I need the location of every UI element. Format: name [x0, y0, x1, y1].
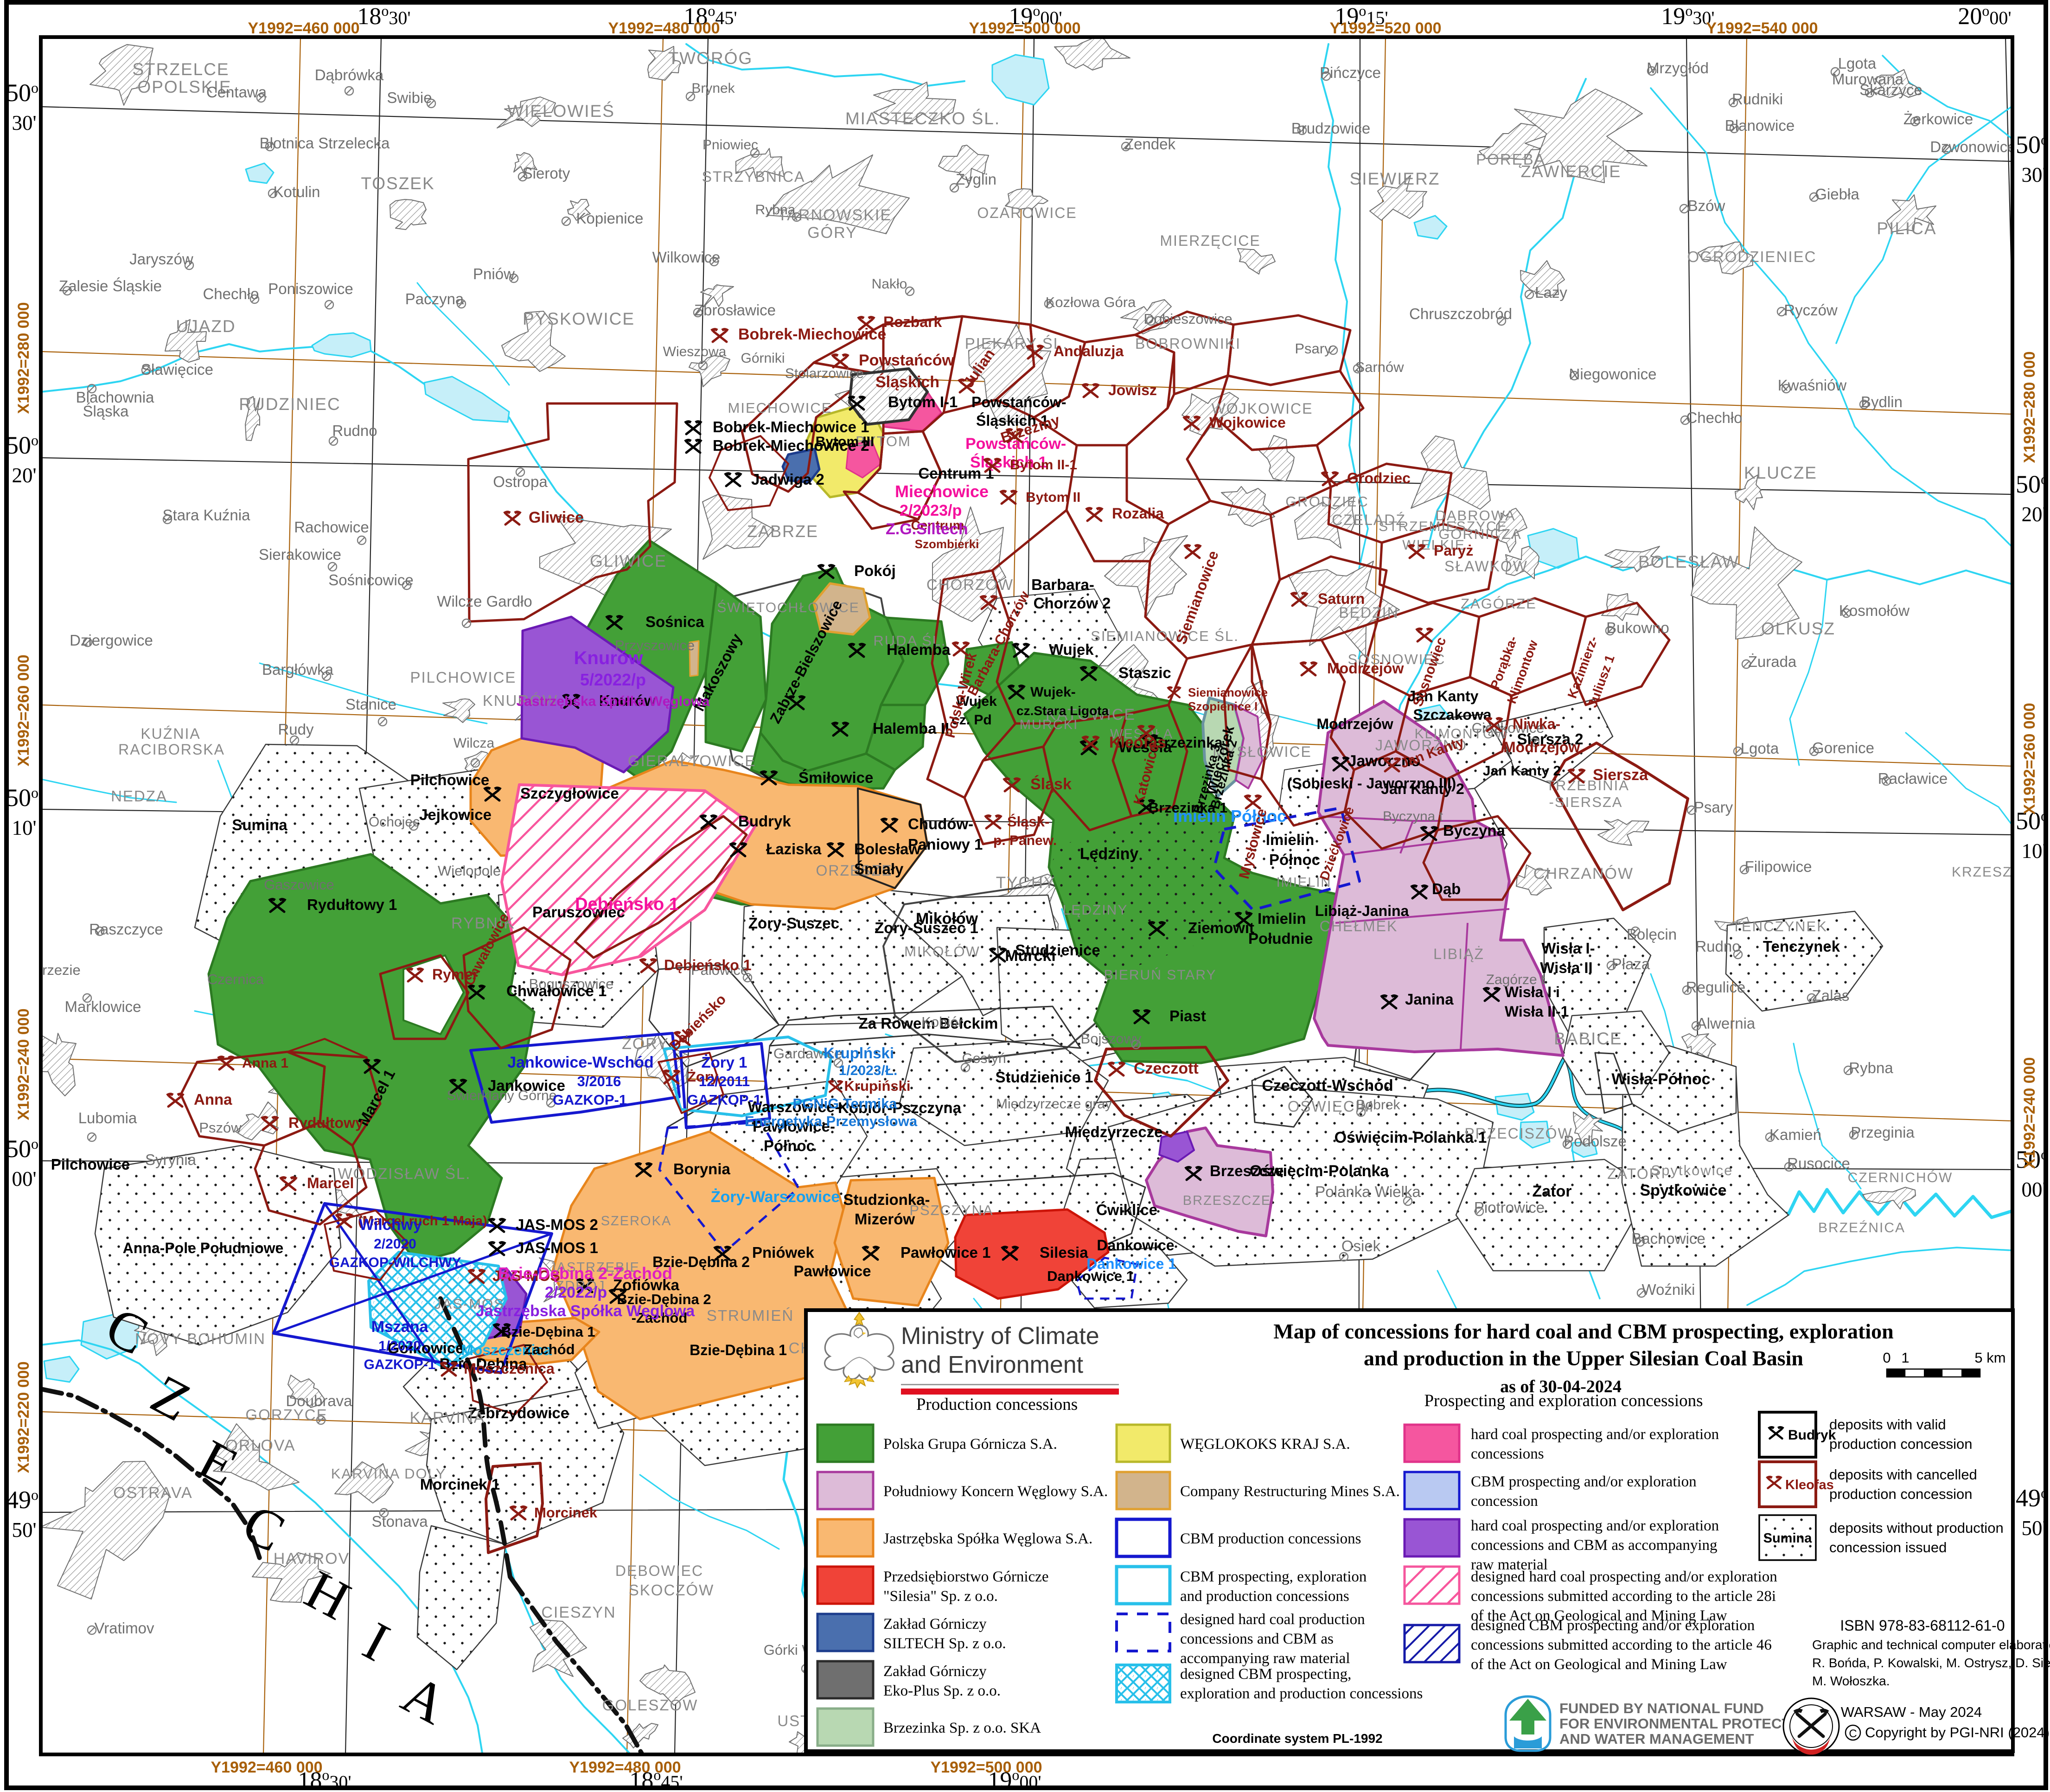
- svg-text:Stonava: Stonava: [371, 1513, 428, 1530]
- svg-text:Przedsiębiorstwo Górnicze: Przedsiębiorstwo Górnicze: [883, 1568, 1048, 1585]
- svg-text:Y1992=480 000: Y1992=480 000: [608, 19, 720, 37]
- svg-text:OLKUSZ: OLKUSZ: [1761, 619, 1835, 638]
- svg-text:CHRZANÓW: CHRZANÓW: [1533, 865, 1634, 883]
- svg-text:SIEWIERZ: SIEWIERZ: [1350, 169, 1440, 188]
- svg-text:concession: concession: [1471, 1493, 1538, 1510]
- svg-text:Płaza: Płaza: [1612, 955, 1650, 973]
- svg-text:Pniówek: Pniówek: [752, 1244, 815, 1261]
- svg-text:Modrzejów: Modrzejów: [1503, 739, 1580, 755]
- svg-text:SZEROKA: SZEROKA: [601, 1214, 672, 1229]
- svg-text:X1992=240 000: X1992=240 000: [15, 1008, 32, 1120]
- svg-text:WARSAW - May 2024: WARSAW - May 2024: [1841, 1704, 1982, 1720]
- svg-text:OGRODZIENIEC: OGRODZIENIEC: [1687, 248, 1817, 265]
- svg-text:Sumina: Sumina: [232, 816, 287, 833]
- svg-text:Energetyka Przemysłowa: Energetyka Przemysłowa: [745, 1113, 918, 1129]
- svg-text:Gorenice: Gorenice: [1812, 739, 1874, 756]
- svg-text:Śmiłowice: Śmiłowice: [798, 769, 873, 786]
- svg-text:Lgota: Lgota: [1741, 740, 1779, 757]
- svg-text:Czeczott-Wschód: Czeczott-Wschód: [1262, 1077, 1393, 1094]
- svg-text:Bydlin: Bydlin: [1861, 393, 1903, 410]
- svg-text:STRZYBNICA: STRZYBNICA: [702, 168, 805, 185]
- svg-text:1919: 1919: [1804, 1739, 1818, 1746]
- svg-text:Sieroty: Sieroty: [523, 165, 570, 182]
- svg-text:Wielopole: Wielopole: [438, 863, 501, 879]
- svg-text:Stanice: Stanice: [345, 696, 396, 713]
- svg-text:OSTRAVA: OSTRAVA: [113, 1484, 192, 1502]
- svg-text:Tenczynek: Tenczynek: [1763, 938, 1840, 955]
- svg-text:Brzeszcze: Brzeszcze: [1210, 1162, 1284, 1179]
- svg-text:LIBIĄŻ: LIBIĄŻ: [1433, 946, 1484, 962]
- svg-text:deposits with valid: deposits with valid: [1829, 1416, 1946, 1433]
- svg-text:Saturn: Saturn: [1318, 590, 1365, 607]
- svg-text:STRZEMIESZYCE: STRZEMIESZYCE: [1379, 519, 1507, 534]
- svg-text:WĘGLOKOKS KRAJ S.A.: WĘGLOKOKS KRAJ S.A.: [1180, 1436, 1350, 1453]
- svg-text:Spytkowice: Spytkowice: [1640, 1182, 1726, 1199]
- svg-text:SKOCZÓW: SKOCZÓW: [629, 1581, 715, 1599]
- svg-text:Dzwonowice: Dzwonowice: [1930, 138, 2016, 155]
- svg-text:Wojkowice: Wojkowice: [1209, 414, 1286, 431]
- svg-text:Rybna: Rybna: [755, 202, 796, 218]
- svg-text:BOLESŁAW: BOLESŁAW: [1638, 552, 1739, 571]
- svg-text:Coordinate system PL-1992: Coordinate system PL-1992: [1212, 1731, 1382, 1746]
- svg-text:Bytom II-1: Bytom II-1: [1010, 457, 1077, 473]
- svg-text:Libiąż-Janina: Libiąż-Janina: [1315, 902, 1409, 919]
- svg-text:Dąb: Dąb: [1432, 880, 1461, 897]
- svg-text:Jadwiga 2: Jadwiga 2: [751, 471, 824, 488]
- svg-text:Śmiały: Śmiały: [854, 860, 904, 877]
- svg-text:Halemba: Halemba: [887, 641, 951, 658]
- svg-text:Borynia: Borynia: [673, 1160, 731, 1178]
- svg-text:SILTECH Sp. z o.o.: SILTECH Sp. z o.o.: [883, 1635, 1006, 1652]
- svg-text:Halemba II: Halemba II: [873, 720, 949, 737]
- svg-text:Psary: Psary: [1295, 340, 1332, 357]
- svg-text:JAS-MOS 2: JAS-MOS 2: [516, 1216, 598, 1233]
- svg-text:Przeginia: Przeginia: [1851, 1124, 1915, 1141]
- svg-text:Ćwiklice: Ćwiklice: [1096, 1201, 1157, 1218]
- svg-text:Pniów: Pniów: [473, 265, 515, 282]
- svg-text:Bobrek: Bobrek: [1356, 1097, 1400, 1113]
- svg-text:Międzyrzecze: Międzyrzecze: [1065, 1123, 1163, 1140]
- svg-text:00': 00': [2021, 1178, 2046, 1201]
- svg-text:X1992=260 000: X1992=260 000: [2021, 703, 2038, 814]
- svg-text:Oświęcim-Polanka 1: Oświęcim-Polanka 1: [1335, 1129, 1487, 1146]
- svg-text:Rachowice: Rachowice: [294, 518, 369, 536]
- svg-text:12/2011: 12/2011: [699, 1073, 750, 1089]
- svg-text:Miechowice: Miechowice: [895, 482, 989, 501]
- svg-text:Międzyrzecze gray: Międzyrzecze gray: [996, 1096, 1112, 1112]
- svg-text:and Environment: and Environment: [901, 1351, 1084, 1378]
- svg-text:CBM prospecting and/or explora: CBM prospecting and/or exploration: [1471, 1473, 1697, 1490]
- svg-text:(Sobieski - Jaworzno III): (Sobieski - Jaworzno III): [1287, 775, 1456, 792]
- svg-text:Production concessions: Production concessions: [916, 1395, 1078, 1414]
- svg-text:Dębieńsko 1: Dębieńsko 1: [575, 895, 679, 914]
- svg-text:MIASTECZKO ŚL.: MIASTECZKO ŚL.: [845, 109, 1000, 128]
- svg-text:Bytom II: Bytom II: [1026, 490, 1080, 505]
- svg-text:Blanowice: Blanowice: [1725, 117, 1795, 134]
- svg-text:designed hard coal production: designed hard coal production: [1180, 1611, 1365, 1628]
- svg-text:R. Bońda, P. Kowalski, M. Ostr: R. Bońda, P. Kowalski, M. Ostrysz, D. Si…: [1812, 1656, 2050, 1670]
- svg-text:Studzienice 1: Studzienice 1: [996, 1069, 1093, 1086]
- svg-text:KARVINA: KARVINA: [410, 1409, 485, 1427]
- svg-text:Rudno: Rudno: [332, 422, 377, 439]
- svg-text:Żerkowice: Żerkowice: [1903, 110, 1973, 128]
- svg-text:Wisła I-: Wisła I-: [1541, 940, 1595, 957]
- svg-text:Copyright by PGI-NRI (2024): Copyright by PGI-NRI (2024): [1865, 1724, 2050, 1741]
- svg-text:-SIERSZA: -SIERSZA: [1549, 794, 1623, 810]
- svg-text:Andaluzja: Andaluzja: [1054, 343, 1124, 359]
- svg-text:KLUCZE: KLUCZE: [1744, 463, 1817, 482]
- svg-text:Łaziska: Łaziska: [766, 840, 822, 858]
- svg-text:Wilcza: Wilcza: [453, 736, 495, 751]
- svg-text:Spytkowice: Spytkowice: [1651, 1162, 1733, 1178]
- svg-text:Śląskich: Śląskich: [875, 373, 939, 391]
- svg-text:Szczakowa: Szczakowa: [1413, 706, 1492, 723]
- svg-text:Czernica: Czernica: [207, 971, 264, 987]
- svg-text:FUNDED BY NATIONAL FUND: FUNDED BY NATIONAL FUND: [1559, 1700, 1764, 1716]
- svg-text:Gostyń: Gostyń: [962, 1051, 1006, 1066]
- svg-text:Sierakowice: Sierakowice: [259, 546, 341, 563]
- svg-text:MIKOŁÓW: MIKOŁÓW: [904, 943, 980, 960]
- svg-text:Bobrek-Miechowice 1: Bobrek-Miechowice 1: [713, 418, 869, 435]
- svg-text:Anna-Pole Południowe: Anna-Pole Południowe: [123, 1240, 284, 1256]
- svg-text:Prospecting and exploration co: Prospecting and exploration concessions: [1424, 1391, 1703, 1410]
- svg-text:GÓRY: GÓRY: [807, 224, 857, 242]
- svg-text:Kruplński: Kruplński: [824, 1044, 894, 1062]
- svg-text:MURCKI: MURCKI: [1020, 717, 1078, 732]
- svg-text:Jowisz: Jowisz: [1108, 382, 1157, 398]
- svg-text:Zakład Górniczy: Zakład Górniczy: [883, 1663, 987, 1680]
- svg-text:Żurada: Żurada: [1748, 653, 1797, 670]
- svg-text:Y1992=460 000: Y1992=460 000: [248, 19, 359, 37]
- svg-text:Lubomia: Lubomia: [78, 1109, 137, 1126]
- svg-text:Rydułtowy: Rydułtowy: [288, 1114, 364, 1131]
- svg-text:Czeczott: Czeczott: [1134, 1060, 1199, 1077]
- svg-text:Pszów: Pszów: [199, 1120, 242, 1136]
- svg-text:FOR ENVIRONMENTAL PROTECTION: FOR ENVIRONMENTAL PROTECTION: [1559, 1715, 1816, 1732]
- svg-text:Company Restructuring Mines S.: Company Restructuring Mines S.A.: [1180, 1483, 1400, 1500]
- svg-text:Bachowice: Bachowice: [1631, 1230, 1705, 1247]
- svg-text:Kopienice: Kopienice: [576, 210, 644, 227]
- svg-text:Z.G.Siltech: Z.G.Siltech: [886, 520, 968, 538]
- svg-text:10': 10': [12, 816, 36, 839]
- svg-text:deposits with cancelled: deposits with cancelled: [1829, 1466, 1977, 1483]
- svg-text:Północ: Północ: [764, 1137, 815, 1154]
- svg-text:Kwaśniów: Kwaśniów: [1778, 377, 1847, 394]
- svg-text:Siersza: Siersza: [1593, 766, 1648, 784]
- svg-text:Chudów-: Chudów-: [908, 815, 973, 832]
- svg-text:Bytom I-1: Bytom I-1: [888, 393, 958, 410]
- svg-text:Ryczów: Ryczów: [1784, 301, 1838, 319]
- svg-text:Pilchowice: Pilchowice: [410, 771, 490, 788]
- svg-text:Żory-Suszec: Żory-Suszec: [748, 915, 839, 932]
- svg-text:Raszczyce: Raszczyce: [89, 921, 163, 938]
- svg-text:Kobiór: Kobiór: [921, 1014, 963, 1030]
- svg-text:Dankowice 1: Dankowice 1: [1047, 1268, 1134, 1284]
- svg-text:Mszana: Mszana: [371, 1318, 429, 1336]
- svg-text:Bobrek-Miechowice: Bobrek-Miechowice: [738, 326, 886, 343]
- svg-text:Sośnica: Sośnica: [645, 613, 704, 630]
- svg-text:GRODZIEC: GRODZIEC: [1285, 493, 1369, 510]
- svg-text:Lgota: Lgota: [1838, 55, 1877, 72]
- svg-text:PILICA: PILICA: [1877, 219, 1936, 238]
- svg-text:Barbara-: Barbara-: [1031, 576, 1094, 593]
- svg-text:Dziergowice: Dziergowice: [70, 632, 153, 649]
- svg-text:Chruszczobród: Chruszczobród: [1409, 305, 1512, 322]
- svg-text:Sumina: Sumina: [1763, 1531, 1813, 1546]
- svg-text:hard coal prospecting and/or e: hard coal prospecting and/or exploration: [1471, 1517, 1719, 1534]
- svg-text:X1992=240 000: X1992=240 000: [2021, 1057, 2038, 1169]
- svg-text:Kleofas: Kleofas: [1785, 1478, 1834, 1492]
- svg-text:GORZYCE: GORZYCE: [245, 1406, 327, 1423]
- svg-text:Wisła-Północ: Wisła-Północ: [1611, 1070, 1710, 1088]
- svg-text:Dobieszowice: Dobieszowice: [1143, 311, 1232, 327]
- svg-text:- Zachód: - Zachód: [515, 1341, 575, 1357]
- svg-text:Kotulin: Kotulin: [274, 183, 320, 200]
- svg-text:Pokój: Pokój: [854, 562, 896, 579]
- svg-text:Map of concessions for hard co: Map of concessions for hard coal and CBM…: [1273, 1319, 1893, 1343]
- svg-text:Ochojec: Ochojec: [369, 814, 420, 830]
- svg-text:Centawa: Centawa: [206, 83, 267, 101]
- svg-text:Silesia: Silesia: [1040, 1244, 1088, 1261]
- svg-text:Pilchowice: Pilchowice: [51, 1156, 130, 1173]
- svg-text:Jastrzębska Spółka Węglowa S.A: Jastrzębska Spółka Węglowa S.A.: [883, 1530, 1092, 1547]
- svg-text:hard coal prospecting and/or e: hard coal prospecting and/or exploration: [1471, 1426, 1719, 1443]
- svg-text:Rudno: Rudno: [1695, 938, 1740, 955]
- svg-text:Zendek: Zendek: [1124, 135, 1176, 153]
- svg-text:Żory 1: Żory 1: [701, 1054, 747, 1071]
- svg-text:TOSZEK: TOSZEK: [361, 174, 434, 193]
- svg-text:Wilkowice: Wilkowice: [652, 249, 721, 266]
- svg-text:exploration and production con: exploration and production concessions: [1180, 1685, 1423, 1702]
- svg-text:2/2022/p: 2/2022/p: [545, 1284, 607, 1301]
- svg-text:CBM production concessions: CBM production concessions: [1180, 1530, 1361, 1547]
- svg-text:RACIBORSKA: RACIBORSKA: [118, 741, 225, 758]
- svg-text:Sarnów: Sarnów: [1355, 359, 1404, 375]
- svg-text:GAZKOP-WILCHWY: GAZKOP-WILCHWY: [329, 1255, 461, 1270]
- svg-text:1/2023/Ł.: 1/2023/Ł.: [839, 1063, 898, 1078]
- svg-text:Wilchwy: Wilchwy: [359, 1216, 422, 1234]
- svg-text:ZABRZE: ZABRZE: [747, 522, 818, 541]
- svg-text:KUŹNIA: KUŹNIA: [140, 725, 200, 742]
- svg-text:BABICE: BABICE: [1554, 1029, 1622, 1048]
- svg-text:Śląska: Śląska: [83, 402, 129, 420]
- svg-text:and production in the Upper Si: and production in the Upper Silesian Coa…: [1364, 1346, 1803, 1370]
- svg-text:JAS-MOS 1: JAS-MOS 1: [516, 1239, 598, 1256]
- svg-text:M. Wołoszka.: M. Wołoszka.: [1812, 1674, 1890, 1688]
- svg-text:GAZKOP-1: GAZKOP-1: [364, 1357, 435, 1372]
- svg-text:p. Panew.: p. Panew.: [993, 833, 1057, 848]
- svg-text:X1992=260 000: X1992=260 000: [15, 654, 32, 766]
- svg-text:Bzie-Dębina 2-Zachód: Bzie-Dębina 2-Zachód: [498, 1264, 672, 1283]
- svg-text:GLIWICE: GLIWICE: [590, 551, 667, 570]
- svg-text:50': 50': [12, 1518, 36, 1542]
- svg-text:PILCHOWICE: PILCHOWICE: [410, 669, 516, 686]
- svg-text:Regulice: Regulice: [1686, 979, 1745, 996]
- svg-text:Bzów: Bzów: [1688, 197, 1725, 214]
- svg-text:Mizerów: Mizerów: [855, 1210, 915, 1228]
- svg-text:Psary: Psary: [1694, 799, 1733, 816]
- svg-text:concession issued: concession issued: [1829, 1539, 1947, 1555]
- svg-text:"Silesia" Sp. z o.o.: "Silesia" Sp. z o.o.: [883, 1588, 998, 1605]
- svg-text:Zakład Górniczy: Zakład Górniczy: [883, 1616, 987, 1632]
- svg-text:Moszczenica: Moszczenica: [464, 1360, 555, 1377]
- svg-text:Modrzejów: Modrzejów: [1327, 660, 1404, 677]
- svg-text:Knurów: Knurów: [574, 648, 644, 668]
- svg-text:Alwernia: Alwernia: [1697, 1015, 1756, 1032]
- svg-text:Eko-Plus Sp. z o.o.: Eko-Plus Sp. z o.o.: [883, 1683, 1001, 1699]
- svg-text:BOBROWNIKI: BOBROWNIKI: [1135, 335, 1241, 352]
- svg-text:Żyglin: Żyglin: [956, 171, 996, 188]
- svg-text:Y1992=540 000: Y1992=540 000: [1706, 19, 1818, 37]
- svg-text:Woźniki: Woźniki: [1642, 1281, 1695, 1298]
- svg-text:1: 1: [1901, 1350, 1909, 1366]
- svg-text:1/2020: 1/2020: [378, 1338, 421, 1354]
- svg-text:Wisła II: Wisła II: [1540, 959, 1592, 976]
- svg-text:CHEŁMEK: CHEŁMEK: [1320, 918, 1398, 934]
- svg-text:WIELOWIEŚ: WIELOWIEŚ: [507, 101, 615, 121]
- svg-text:00': 00': [12, 1167, 36, 1190]
- svg-text:Lędziny: Lędziny: [1080, 845, 1139, 863]
- svg-text:production concession: production concession: [1829, 1486, 1972, 1502]
- svg-text:5/2022/p: 5/2022/p: [580, 670, 646, 689]
- svg-text:5 km: 5 km: [1974, 1350, 2005, 1366]
- svg-text:Sośnicowice: Sośnicowice: [328, 571, 413, 589]
- svg-text:Stara Kuźnia: Stara Kuźnia: [163, 506, 251, 524]
- svg-text:Ostropa: Ostropa: [493, 473, 548, 490]
- svg-text:Byczyna: Byczyna: [1443, 822, 1506, 839]
- svg-text:Brynek: Brynek: [691, 81, 735, 96]
- svg-text:ZAWIERCIE: ZAWIERCIE: [1521, 162, 1622, 181]
- svg-text:Wujek: Wujek: [1049, 641, 1094, 658]
- svg-text:OZAROWICE: OZAROWICE: [977, 205, 1077, 221]
- svg-text:30': 30': [2021, 163, 2046, 186]
- svg-text:Racławice: Racławice: [1878, 770, 1948, 787]
- svg-text:UJAZD: UJAZD: [176, 317, 236, 336]
- svg-text:Siemianowice: Siemianowice: [1188, 685, 1268, 699]
- svg-text:Rymer: Rymer: [432, 966, 479, 983]
- svg-text:10': 10': [2021, 839, 2046, 863]
- svg-text:cz.Stara Ligota: cz.Stara Ligota: [1016, 704, 1109, 718]
- svg-text:Rusocice: Rusocice: [1787, 1155, 1850, 1172]
- svg-text:C: C: [1849, 1728, 1857, 1740]
- svg-text:MIECHOWICE: MIECHOWICE: [728, 400, 832, 416]
- svg-text:Paczyna: Paczyna: [405, 290, 464, 307]
- svg-text:Kamień: Kamień: [1769, 1126, 1821, 1143]
- svg-text:Szczygłowice: Szczygłowice: [520, 785, 619, 802]
- svg-text:production concession: production concession: [1829, 1436, 1972, 1452]
- svg-text:X1992=280 000: X1992=280 000: [15, 302, 32, 414]
- svg-text:Zalas: Zalas: [1812, 987, 1850, 1004]
- svg-text:Anna 1: Anna 1: [242, 1056, 288, 1071]
- svg-text:Marklowice: Marklowice: [64, 998, 141, 1015]
- svg-text:NEDZA: NEDZA: [111, 787, 167, 805]
- svg-text:TWORÓG: TWORÓG: [668, 49, 753, 68]
- svg-text:SIEMIANOWICE ŚL.: SIEMIANOWICE ŚL.: [1091, 627, 1239, 644]
- svg-text:Filipowice: Filipowice: [1745, 858, 1812, 875]
- svg-text:Anna: Anna: [194, 1091, 232, 1108]
- svg-text:NOVY BOHUMIN: NOVY BOHUMIN: [135, 1330, 266, 1347]
- svg-text:Chechło: Chechło: [203, 285, 259, 302]
- svg-text:BRZESZCZE: BRZESZCZE: [1183, 1193, 1271, 1208]
- svg-text:Chwałowice 1: Chwałowice 1: [506, 982, 607, 999]
- svg-text:Zalesie Śląskie: Zalesie Śląskie: [59, 277, 162, 294]
- svg-text:Łazy: Łazy: [1535, 284, 1567, 301]
- svg-text:AND WATER MANAGEMENT: AND WATER MANAGEMENT: [1559, 1731, 1754, 1747]
- svg-text:Bzie-Dębina 1: Bzie-Dębina 1: [690, 1342, 787, 1358]
- svg-text:Powstańców: Powstańców: [859, 352, 954, 369]
- svg-text:of the Act on Geological and M: of the Act on Geological and Mining Law: [1471, 1656, 1727, 1673]
- svg-text:Jastrzębska Spółka Węglowa: Jastrzębska Spółka Węglowa: [517, 694, 710, 709]
- svg-text:Wilcze Gardło: Wilcze Gardło: [437, 593, 532, 610]
- svg-text:Stolarzowice: Stolarzowice: [785, 366, 864, 381]
- svg-text:ŻORY: ŻORY: [622, 1035, 669, 1053]
- svg-text:Byczyna t: Byczyna t: [1383, 809, 1443, 824]
- svg-text:CHORZÓW: CHORZÓW: [926, 576, 1014, 593]
- svg-text:concessions submitted accordin: concessions submitted according to the a…: [1471, 1637, 1772, 1653]
- svg-text:accompanying raw material: accompanying raw material: [1180, 1650, 1350, 1667]
- svg-text:Chechło: Chechło: [1686, 409, 1742, 426]
- svg-text:BIERUŃ STARY: BIERUŃ STARY: [1104, 967, 1217, 983]
- svg-text:CZERNICHÓW: CZERNICHÓW: [1848, 1170, 1953, 1185]
- svg-text:PYSKOWICE: PYSKOWICE: [523, 309, 635, 328]
- svg-text:Y1992=500 000: Y1992=500 000: [969, 19, 1080, 37]
- svg-text:STRUMIEŃ: STRUMIEŃ: [707, 1307, 794, 1324]
- svg-text:Mikołów: Mikołów: [916, 910, 978, 928]
- svg-text:Modrzejów: Modrzejów: [1316, 716, 1393, 732]
- svg-text:Bukowno: Bukowno: [1606, 619, 1669, 636]
- svg-text:Pawłowice 1: Pawłowice 1: [900, 1244, 990, 1261]
- svg-text:PGNiG Termika: PGNiG Termika: [792, 1095, 897, 1112]
- svg-text:WODZISŁAW ŚL.: WODZISŁAW ŚL.: [338, 1165, 471, 1182]
- svg-text:Marcel: Marcel: [307, 1175, 354, 1191]
- svg-text:Wisła II-1: Wisła II-1: [1505, 1003, 1569, 1020]
- svg-text:MIERZĘCICE: MIERZĘCICE: [1160, 232, 1260, 249]
- svg-text:DĘBOWIEC: DĘBOWIEC: [615, 1562, 703, 1579]
- svg-text:Południowy Koncern Węglowy S.: Południowy Koncern Węglowy S.A.: [883, 1483, 1108, 1500]
- svg-text:Jankowice-Wschód: Jankowice-Wschód: [507, 1054, 654, 1071]
- svg-text:Nakło: Nakło: [872, 276, 907, 292]
- svg-text:Bolęcin: Bolęcin: [1627, 926, 1677, 943]
- svg-text:Bargłówka: Bargłówka: [262, 661, 334, 678]
- svg-text:concessions: concessions: [1471, 1446, 1544, 1462]
- svg-text:Imielin: Imielin: [1258, 910, 1306, 927]
- svg-text:TENCZYNEK: TENCZYNEK: [1732, 918, 1827, 934]
- svg-text:Syrynia: Syrynia: [145, 1151, 197, 1168]
- svg-text:Chorzów 2: Chorzów 2: [1034, 595, 1111, 612]
- svg-text:Vratimov: Vratimov: [95, 1619, 154, 1637]
- svg-text:Grodziec: Grodziec: [1347, 470, 1411, 486]
- svg-text:Bzie-Dębina 1: Bzie-Dębina 1: [501, 1324, 595, 1340]
- svg-text:LĘDZINY: LĘDZINY: [1063, 902, 1128, 918]
- svg-text:Niegowonice: Niegowonice: [1569, 365, 1657, 383]
- svg-text:Podolsze: Podolsze: [1564, 1133, 1627, 1150]
- svg-text:3/2016: 3/2016: [577, 1073, 621, 1089]
- svg-text:Mrzygłód: Mrzygłód: [1647, 59, 1709, 77]
- svg-text:Rudy: Rudy: [278, 721, 314, 738]
- svg-text:Śląsk-: Śląsk-: [1007, 813, 1049, 830]
- svg-text:Jastrzębska Spółka Węglowa: Jastrzębska Spółka Węglowa: [476, 1302, 695, 1320]
- svg-text:Poniszowice: Poniszowice: [268, 280, 353, 297]
- svg-text:PSZCZYNA: PSZCZYNA: [909, 1202, 993, 1218]
- svg-text:designed CBM prospecting and/o: designed CBM prospecting and/or explorat…: [1471, 1617, 1755, 1634]
- svg-text:Kozłowa Góra: Kozłowa Góra: [1046, 294, 1136, 310]
- svg-text:RUDZINIEC: RUDZINIEC: [239, 395, 340, 414]
- svg-text:ORLOVA: ORLOVA: [225, 1437, 295, 1454]
- svg-text:concessions and CBM as: concessions and CBM as: [1180, 1631, 1334, 1647]
- svg-text:KARVINA DOLY: KARVINA DOLY: [331, 1466, 447, 1482]
- svg-text:Szombierki: Szombierki: [915, 537, 979, 551]
- svg-text:ISBN 978-83-68112-61-0: ISBN 978-83-68112-61-0: [1840, 1617, 2005, 1634]
